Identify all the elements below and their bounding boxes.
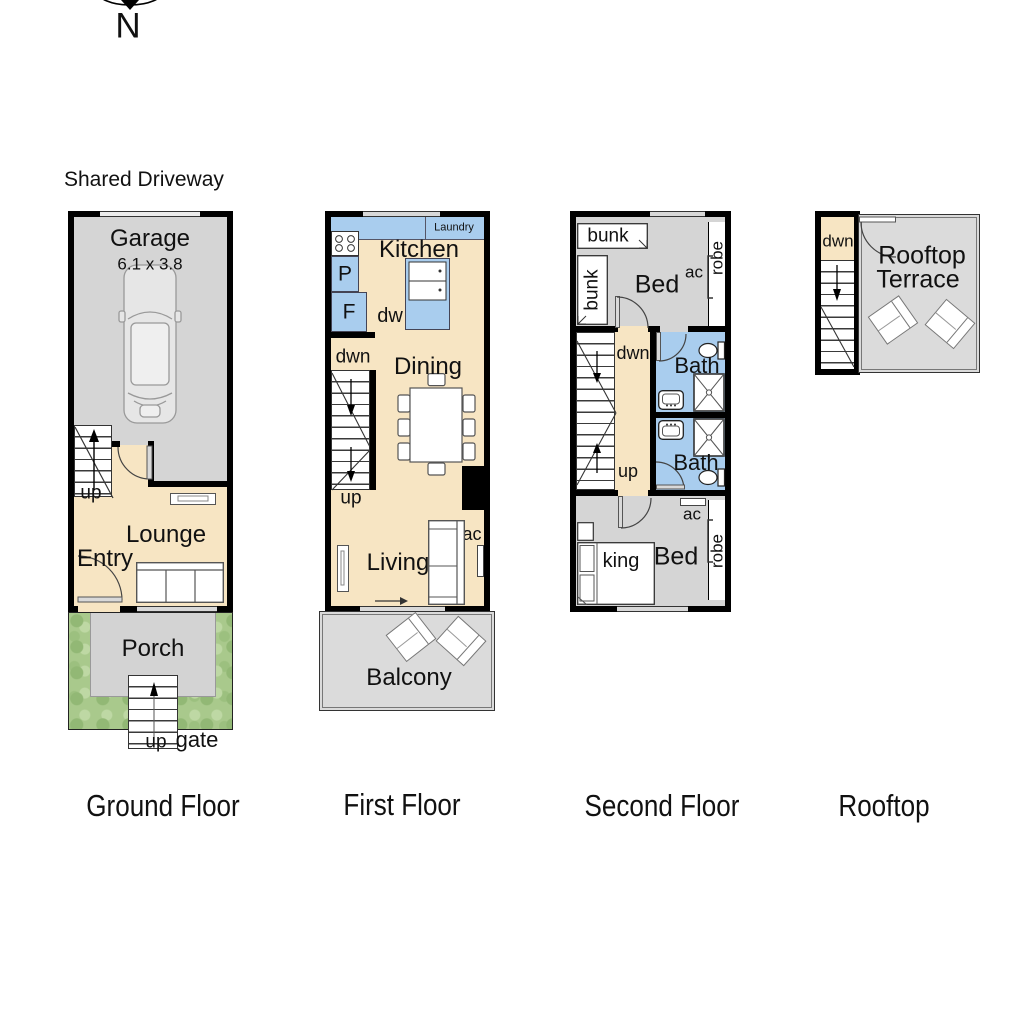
- balcony-label: Balcony: [366, 666, 451, 690]
- rooftop-stairs: [821, 261, 854, 369]
- tv-unit-icon: [337, 545, 349, 592]
- rooftop-terrace: Rooftop Terrace: [858, 214, 980, 373]
- rooftop-dwn-label: dwn: [822, 233, 853, 250]
- first-floor-title: First Floor: [343, 787, 460, 823]
- island-bench-icon: [405, 258, 450, 330]
- gate-label: gate: [176, 729, 219, 751]
- living-sofa-icon: [428, 520, 465, 605]
- bunk-top-label: bunk: [587, 227, 628, 246]
- rooftop-title: Rooftop: [838, 788, 929, 824]
- first-up-label: up: [340, 489, 361, 508]
- ground-up-label: up: [80, 484, 101, 503]
- porch-garden: Porch up gate: [68, 612, 233, 730]
- bed-bottom-window: [617, 606, 688, 612]
- vanity-bottom-icon: [658, 420, 684, 440]
- dining-table-icon: [395, 373, 467, 476]
- first-dwn-label: dwn: [336, 348, 371, 367]
- kitchen-window: [363, 211, 440, 217]
- pantry-label: P: [338, 264, 352, 285]
- first-ac-label: ac: [462, 525, 481, 543]
- bed-top-label: Bed: [635, 273, 679, 298]
- dining-label: Dining: [394, 355, 462, 379]
- dishwasher-label: dw: [377, 306, 403, 326]
- kitchen-label: Kitchen: [379, 238, 459, 262]
- fridge-label: F: [343, 302, 356, 323]
- vanity-top-icon: [658, 390, 684, 410]
- rooftop-stairwell: dwn: [815, 211, 860, 375]
- second-floor-plan: bunk bunk Bed ac robe dwn Bath up Bath a…: [570, 211, 731, 612]
- garage-dim-label: 6.1 x 3.8: [117, 256, 182, 273]
- sofa-icon: [136, 562, 224, 603]
- second-stairs: [576, 332, 615, 490]
- stove-icon: [331, 231, 359, 256]
- king-label: king: [603, 551, 640, 571]
- bed-top-wall-c: [688, 326, 725, 332]
- bath-bottom-label: Bath: [673, 452, 718, 474]
- robe-bottom-label: robe: [709, 534, 726, 568]
- second-dwn-label: dwn: [616, 344, 649, 362]
- bed-bottom-door-icon: [618, 496, 654, 532]
- garage-door-opening: [100, 211, 200, 217]
- bedside-table-icon: [577, 522, 594, 541]
- bed-top-window: [650, 211, 705, 217]
- lounge-label: Lounge: [126, 523, 206, 547]
- ground-floor-plan: Garage 6.1 x 3.8 up Lounge Entry: [68, 211, 233, 612]
- car-icon: [118, 261, 182, 429]
- porch-up-label: up: [145, 733, 166, 752]
- bunk-side-label: bunk: [583, 269, 602, 310]
- second-up-label: up: [618, 462, 638, 480]
- ground-floor-title: Ground Floor: [86, 788, 239, 824]
- second-floor-title: Second Floor: [585, 788, 740, 824]
- entry-door-icon: [114, 443, 156, 485]
- robe-top-label: robe: [709, 241, 726, 275]
- kitchen-nook-wall: [331, 332, 375, 338]
- first-stairs: [331, 370, 370, 490]
- bed-bottom-wall-b: [648, 490, 725, 496]
- fireplace-block: [462, 466, 484, 510]
- console-table-icon: [170, 493, 216, 505]
- garage-label: Garage: [110, 227, 190, 251]
- terrace-label-line2: Terrace: [876, 268, 959, 293]
- entry-label: Entry: [77, 547, 133, 571]
- bed-bottom-label: Bed: [654, 545, 698, 570]
- bath-top-label: Bath: [674, 355, 719, 377]
- balcony: Balcony: [319, 611, 495, 711]
- laundry-label: Laundry: [434, 223, 474, 234]
- stair-dining-wall: [370, 370, 376, 490]
- compass-north-label: N: [115, 9, 140, 44]
- shower-top-icon: [693, 373, 725, 412]
- shared-driveway-label: Shared Driveway: [64, 168, 224, 192]
- bed-top-door-icon: [615, 296, 651, 332]
- garage-lounge-wall-h: [148, 481, 227, 487]
- living-label: Living: [367, 551, 430, 575]
- first-ac-unit-icon: [477, 545, 484, 577]
- porch-label: Porch: [122, 637, 185, 661]
- ac-bottom-label: ac: [683, 506, 701, 523]
- ac-top-label: ac: [685, 264, 703, 281]
- floorplan-page: N Shared Driveway: [0, 0, 1024, 1024]
- first-floor-plan: Laundry P F dw Kitchen dwn: [325, 211, 490, 612]
